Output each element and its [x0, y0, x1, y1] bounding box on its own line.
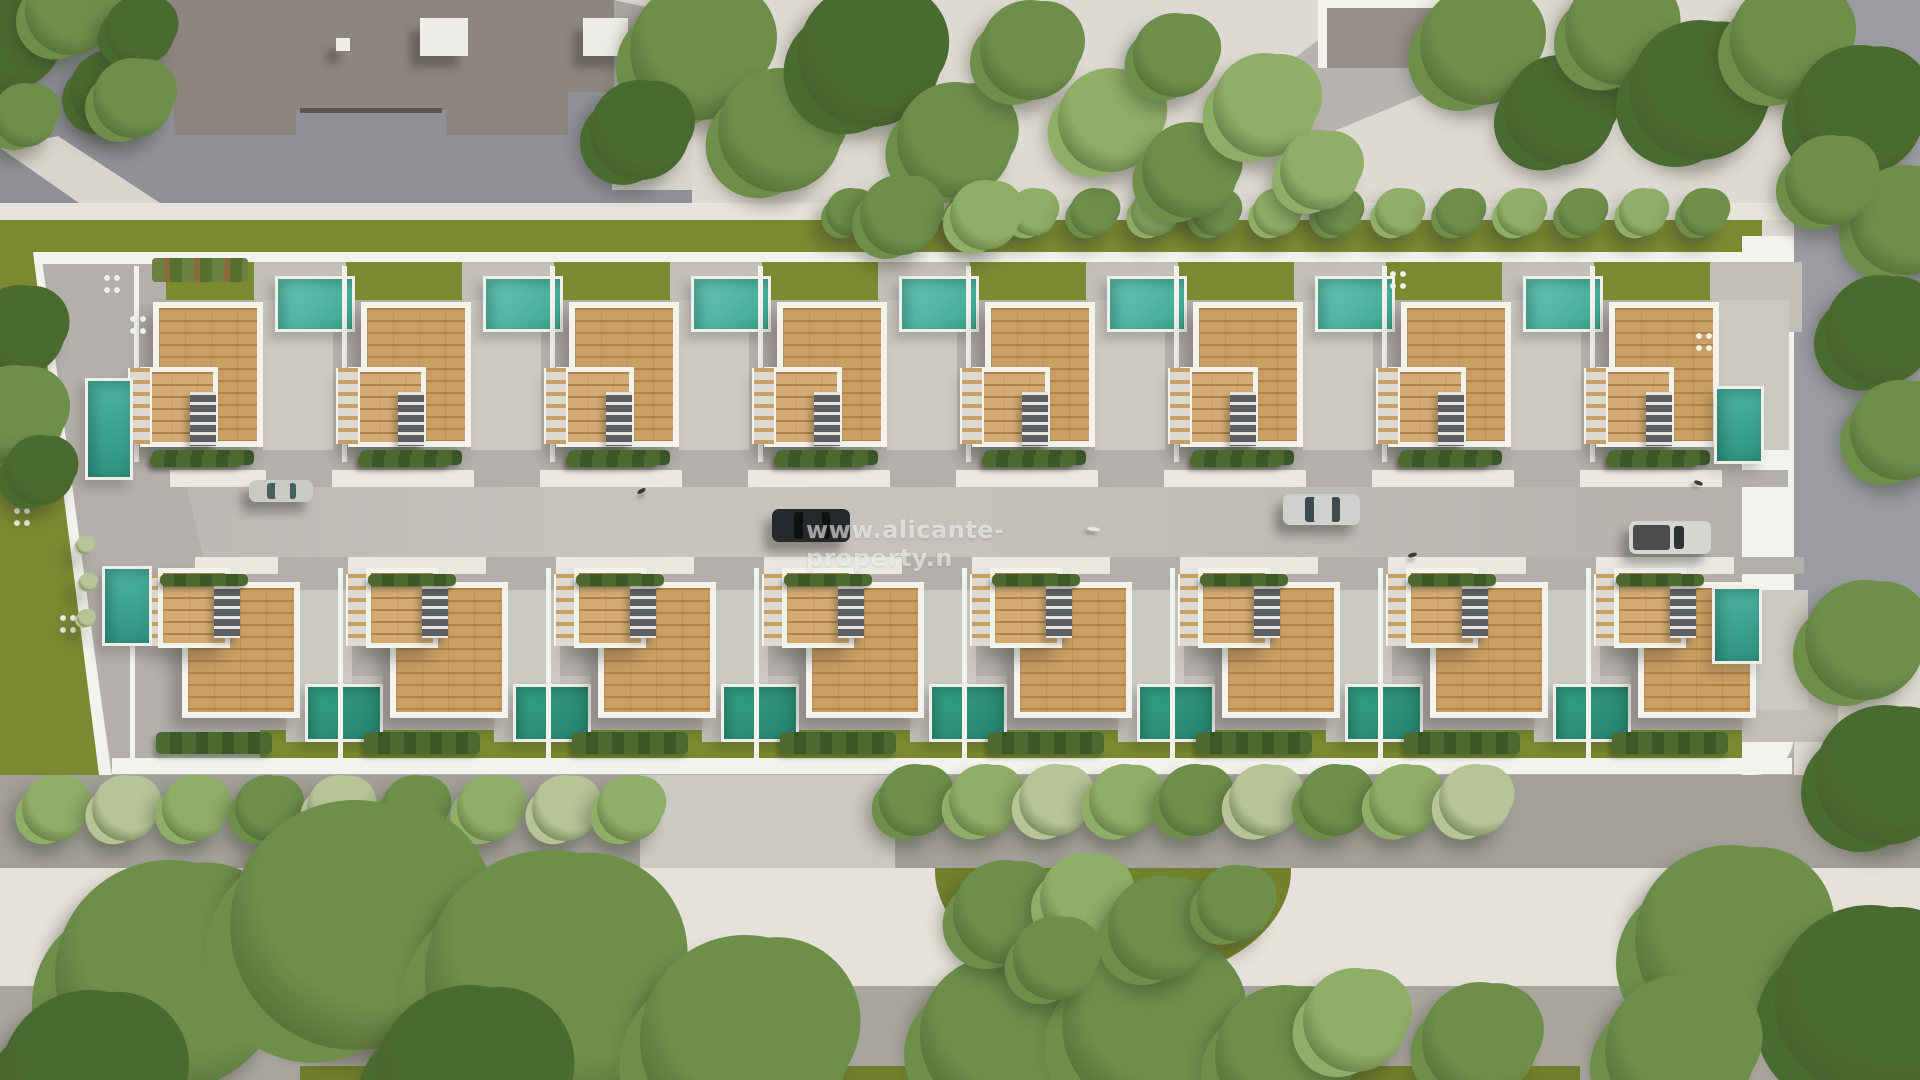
street-bush-b-6 — [1229, 764, 1301, 836]
tree-29 — [1850, 380, 1920, 480]
tree-47 — [1303, 968, 1407, 1072]
tree-4 — [0, 83, 57, 147]
tree-13 — [860, 175, 940, 255]
hedge-bush-top-5 — [1070, 188, 1118, 236]
tree-48 — [1422, 982, 1538, 1080]
tree-28 — [1825, 275, 1920, 385]
tree-52 — [1197, 865, 1273, 941]
hedge-bush-top-11 — [1436, 188, 1484, 236]
tree-53 — [1013, 916, 1097, 1000]
street-bush-a-2 — [92, 775, 158, 841]
street-bush-b-2 — [949, 764, 1021, 836]
street-bush-b-4 — [1089, 764, 1161, 836]
street-bush-b-1 — [879, 764, 951, 836]
tree-18 — [1133, 13, 1217, 97]
street-bush-b-9 — [1439, 764, 1511, 836]
hedge-bush-top-12 — [1497, 188, 1545, 236]
street-bush-a-9 — [597, 775, 663, 841]
hedge-bush-top-13 — [1558, 188, 1606, 236]
hedge-bush-top-10 — [1375, 188, 1423, 236]
aerial-render-new-build-villas: www.alicante-property.n — [0, 0, 1920, 1080]
pale-shrub-1 — [76, 536, 94, 554]
street-bush-a-1 — [22, 775, 88, 841]
pale-shrub-3 — [77, 609, 95, 627]
tree-27 — [1785, 135, 1875, 225]
tree-19 — [1280, 130, 1360, 210]
tree-14 — [950, 180, 1020, 250]
street-bush-a-3 — [162, 775, 228, 841]
tree-30 — [1805, 580, 1920, 700]
street-bush-b-3 — [1019, 764, 1091, 836]
tree-6 — [93, 58, 173, 138]
tree-31 — [1815, 705, 1920, 845]
pale-shrub-2 — [79, 573, 97, 591]
hedge-bush-top-15 — [1680, 188, 1728, 236]
watermark-text: www.alicante-property.n — [806, 516, 1146, 572]
tree-12 — [980, 0, 1080, 100]
street-bush-b-8 — [1369, 764, 1441, 836]
tree-5 — [105, 0, 175, 65]
tree-51 — [1108, 876, 1212, 980]
tree-35 — [0, 285, 65, 375]
street-bush-b-7 — [1299, 764, 1371, 836]
street-bush-a-7 — [457, 775, 523, 841]
tree-8 — [590, 80, 690, 180]
hedge-bush-top-14 — [1619, 188, 1667, 236]
street-bush-b-5 — [1159, 764, 1231, 836]
tree-37 — [5, 435, 75, 505]
street-bush-a-8 — [532, 775, 598, 841]
